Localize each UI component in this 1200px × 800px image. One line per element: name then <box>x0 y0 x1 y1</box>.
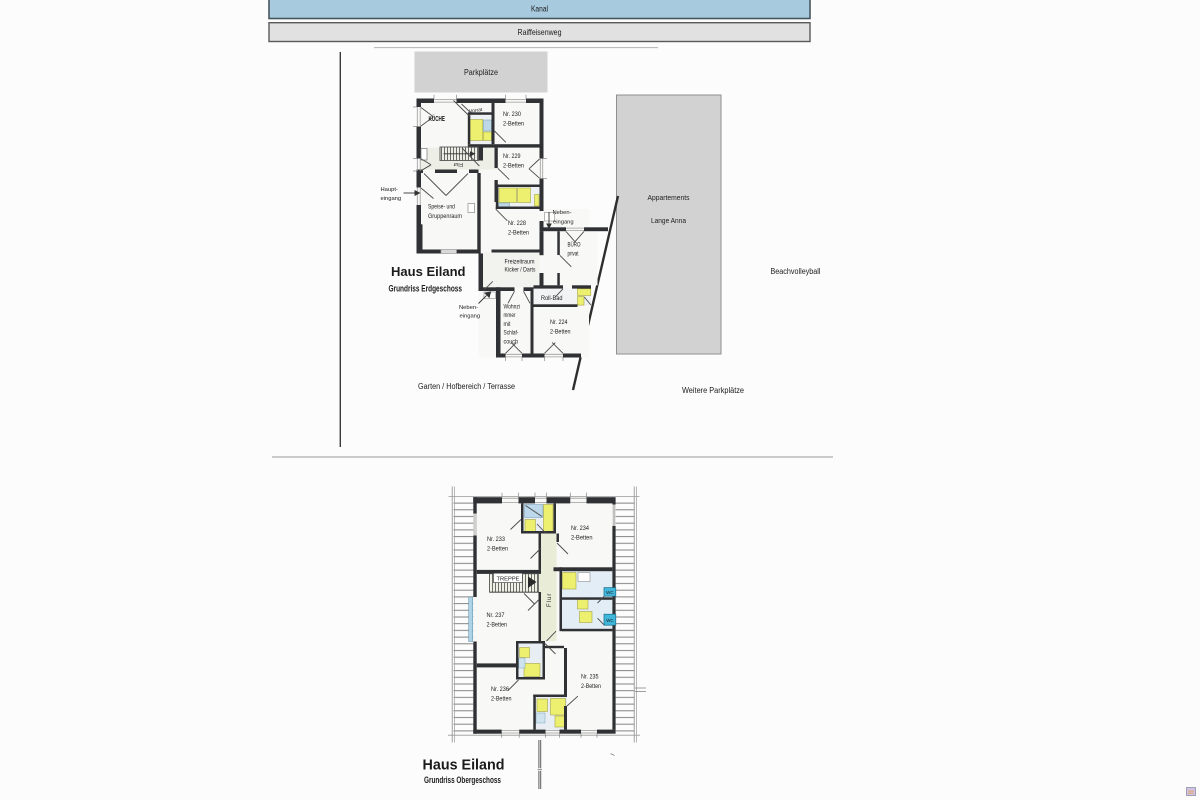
svg-text:2-Betten: 2-Betten <box>491 695 512 702</box>
svg-text:KÜCHE: KÜCHE <box>429 114 446 123</box>
svg-text:Nr. 235: Nr. 235 <box>581 674 599 681</box>
svg-text:2-Betten: 2-Betten <box>508 230 529 237</box>
svg-text:Neben-: Neben- <box>553 210 572 216</box>
svg-text:Appartements: Appartements <box>648 193 690 202</box>
svg-text:TREPPE: TREPPE <box>497 576 521 582</box>
svg-text:BÜRO: BÜRO <box>568 241 581 249</box>
svg-text:2-Betten: 2-Betten <box>487 545 508 552</box>
svg-text:Gruppenraum: Gruppenraum <box>428 213 462 220</box>
svg-text:Nr. 237: Nr. 237 <box>487 612 505 619</box>
svg-text:Flur: Flur <box>453 161 463 167</box>
svg-text:2-Betten: 2-Betten <box>503 162 524 169</box>
svg-text:Kanal: Kanal <box>531 5 548 14</box>
svg-text:Nr. 229: Nr. 229 <box>503 153 521 160</box>
svg-text:Raiffeisenweg: Raiffeisenweg <box>518 27 562 37</box>
svg-text:Lange Anna: Lange Anna <box>651 216 687 225</box>
svg-text:Neben-: Neben- <box>459 305 478 311</box>
svg-text:Nr. 228: Nr. 228 <box>508 220 526 227</box>
svg-text:2-Betten: 2-Betten <box>550 328 571 335</box>
svg-text:Beachvolleyball: Beachvolleyball <box>771 267 821 276</box>
svg-text:2-Betten: 2-Betten <box>503 121 524 128</box>
svg-text:Freizeitraum: Freizeitraum <box>505 260 535 266</box>
svg-text:Nr. 233: Nr. 233 <box>487 536 505 543</box>
svg-text:Grundriss Erdgeschoss: Grundriss Erdgeschoss <box>389 284 463 294</box>
svg-text:couch: couch <box>504 338 519 345</box>
svg-text:Schlaf-: Schlaf- <box>504 330 519 337</box>
svg-text:Nr. 224: Nr. 224 <box>550 319 568 326</box>
svg-text:Garten / Hofbereich / Terrasse: Garten / Hofbereich / Terrasse <box>418 382 515 391</box>
svg-text:privat: privat <box>568 251 579 258</box>
svg-text:Parkplätze: Parkplätze <box>464 68 498 77</box>
svg-text:eingang: eingang <box>381 196 402 202</box>
svg-text:mmer: mmer <box>504 312 516 319</box>
svg-text:2-Betten: 2-Betten <box>487 621 508 628</box>
svg-text:Nr. 234: Nr. 234 <box>571 525 589 532</box>
svg-text:Grundriss Obergeschoss: Grundriss Obergeschoss <box>424 775 501 785</box>
svg-text:Haupt-: Haupt- <box>381 187 398 193</box>
svg-text:Nr. 236: Nr. 236 <box>491 686 509 693</box>
svg-text:Weitere Parkplätze: Weitere Parkplätze <box>682 386 745 395</box>
svg-text:2-Betten: 2-Betten <box>571 534 593 541</box>
svg-text:Haus Eiland: Haus Eiland <box>423 757 505 774</box>
svg-text:Haus Eiland: Haus Eiland <box>391 265 466 279</box>
svg-text:eingang: eingang <box>460 314 481 320</box>
svg-text:eingang: eingang <box>553 219 574 225</box>
svg-text:WC: WC <box>606 618 614 623</box>
svg-text:Kicker / Darts: Kicker / Darts <box>505 268 536 274</box>
svg-text:2-Betten: 2-Betten <box>581 683 601 690</box>
svg-text:WC: WC <box>606 590 614 595</box>
svg-text:Wohnzi: Wohnzi <box>504 304 521 311</box>
svg-text:mit: mit <box>504 321 511 328</box>
svg-text:Speise- und: Speise- und <box>428 204 455 211</box>
svg-text:Flur: Flur <box>547 593 553 607</box>
svg-text:Nr. 230: Nr. 230 <box>503 111 521 118</box>
svg-text:Roll-Bad: Roll-Bad <box>541 295 563 302</box>
